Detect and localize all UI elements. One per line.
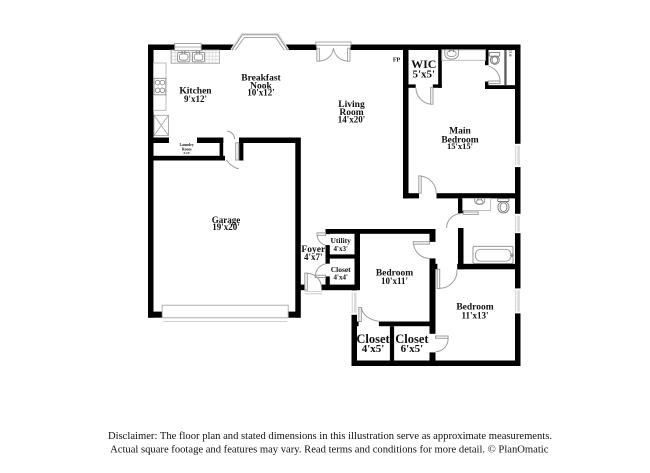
svg-text:4'x3': 4'x3' — [334, 245, 348, 253]
svg-text:9'x12': 9'x12' — [184, 94, 207, 104]
svg-text:4'x5': 4'x5' — [362, 343, 385, 355]
svg-text:6'x5': 6'x5' — [401, 343, 424, 355]
svg-text:14'x20': 14'x20' — [338, 114, 366, 124]
svg-text:10'x11': 10'x11' — [381, 276, 408, 286]
svg-text:19'x20': 19'x20' — [212, 222, 240, 232]
svg-text:4'x7': 4'x7' — [304, 252, 323, 262]
svg-text:4'x5': 4'x5' — [183, 151, 190, 155]
svg-text:Laundry: Laundry — [180, 143, 194, 147]
svg-text:FP: FP — [393, 58, 401, 64]
svg-text:Disclaimer: The floor plan and: Disclaimer: The floor plan and stated di… — [108, 431, 552, 442]
svg-text:4'x4': 4'x4' — [334, 274, 348, 282]
svg-text:11'x13': 11'x13' — [461, 310, 488, 320]
svg-text:5'x5': 5'x5' — [412, 68, 435, 80]
svg-text:Utility: Utility — [330, 236, 351, 245]
svg-text:Actual square footage and feat: Actual square footage and features may v… — [110, 445, 549, 456]
svg-text:15'x15': 15'x15' — [447, 141, 473, 151]
svg-text:10'x12': 10'x12' — [247, 87, 275, 97]
